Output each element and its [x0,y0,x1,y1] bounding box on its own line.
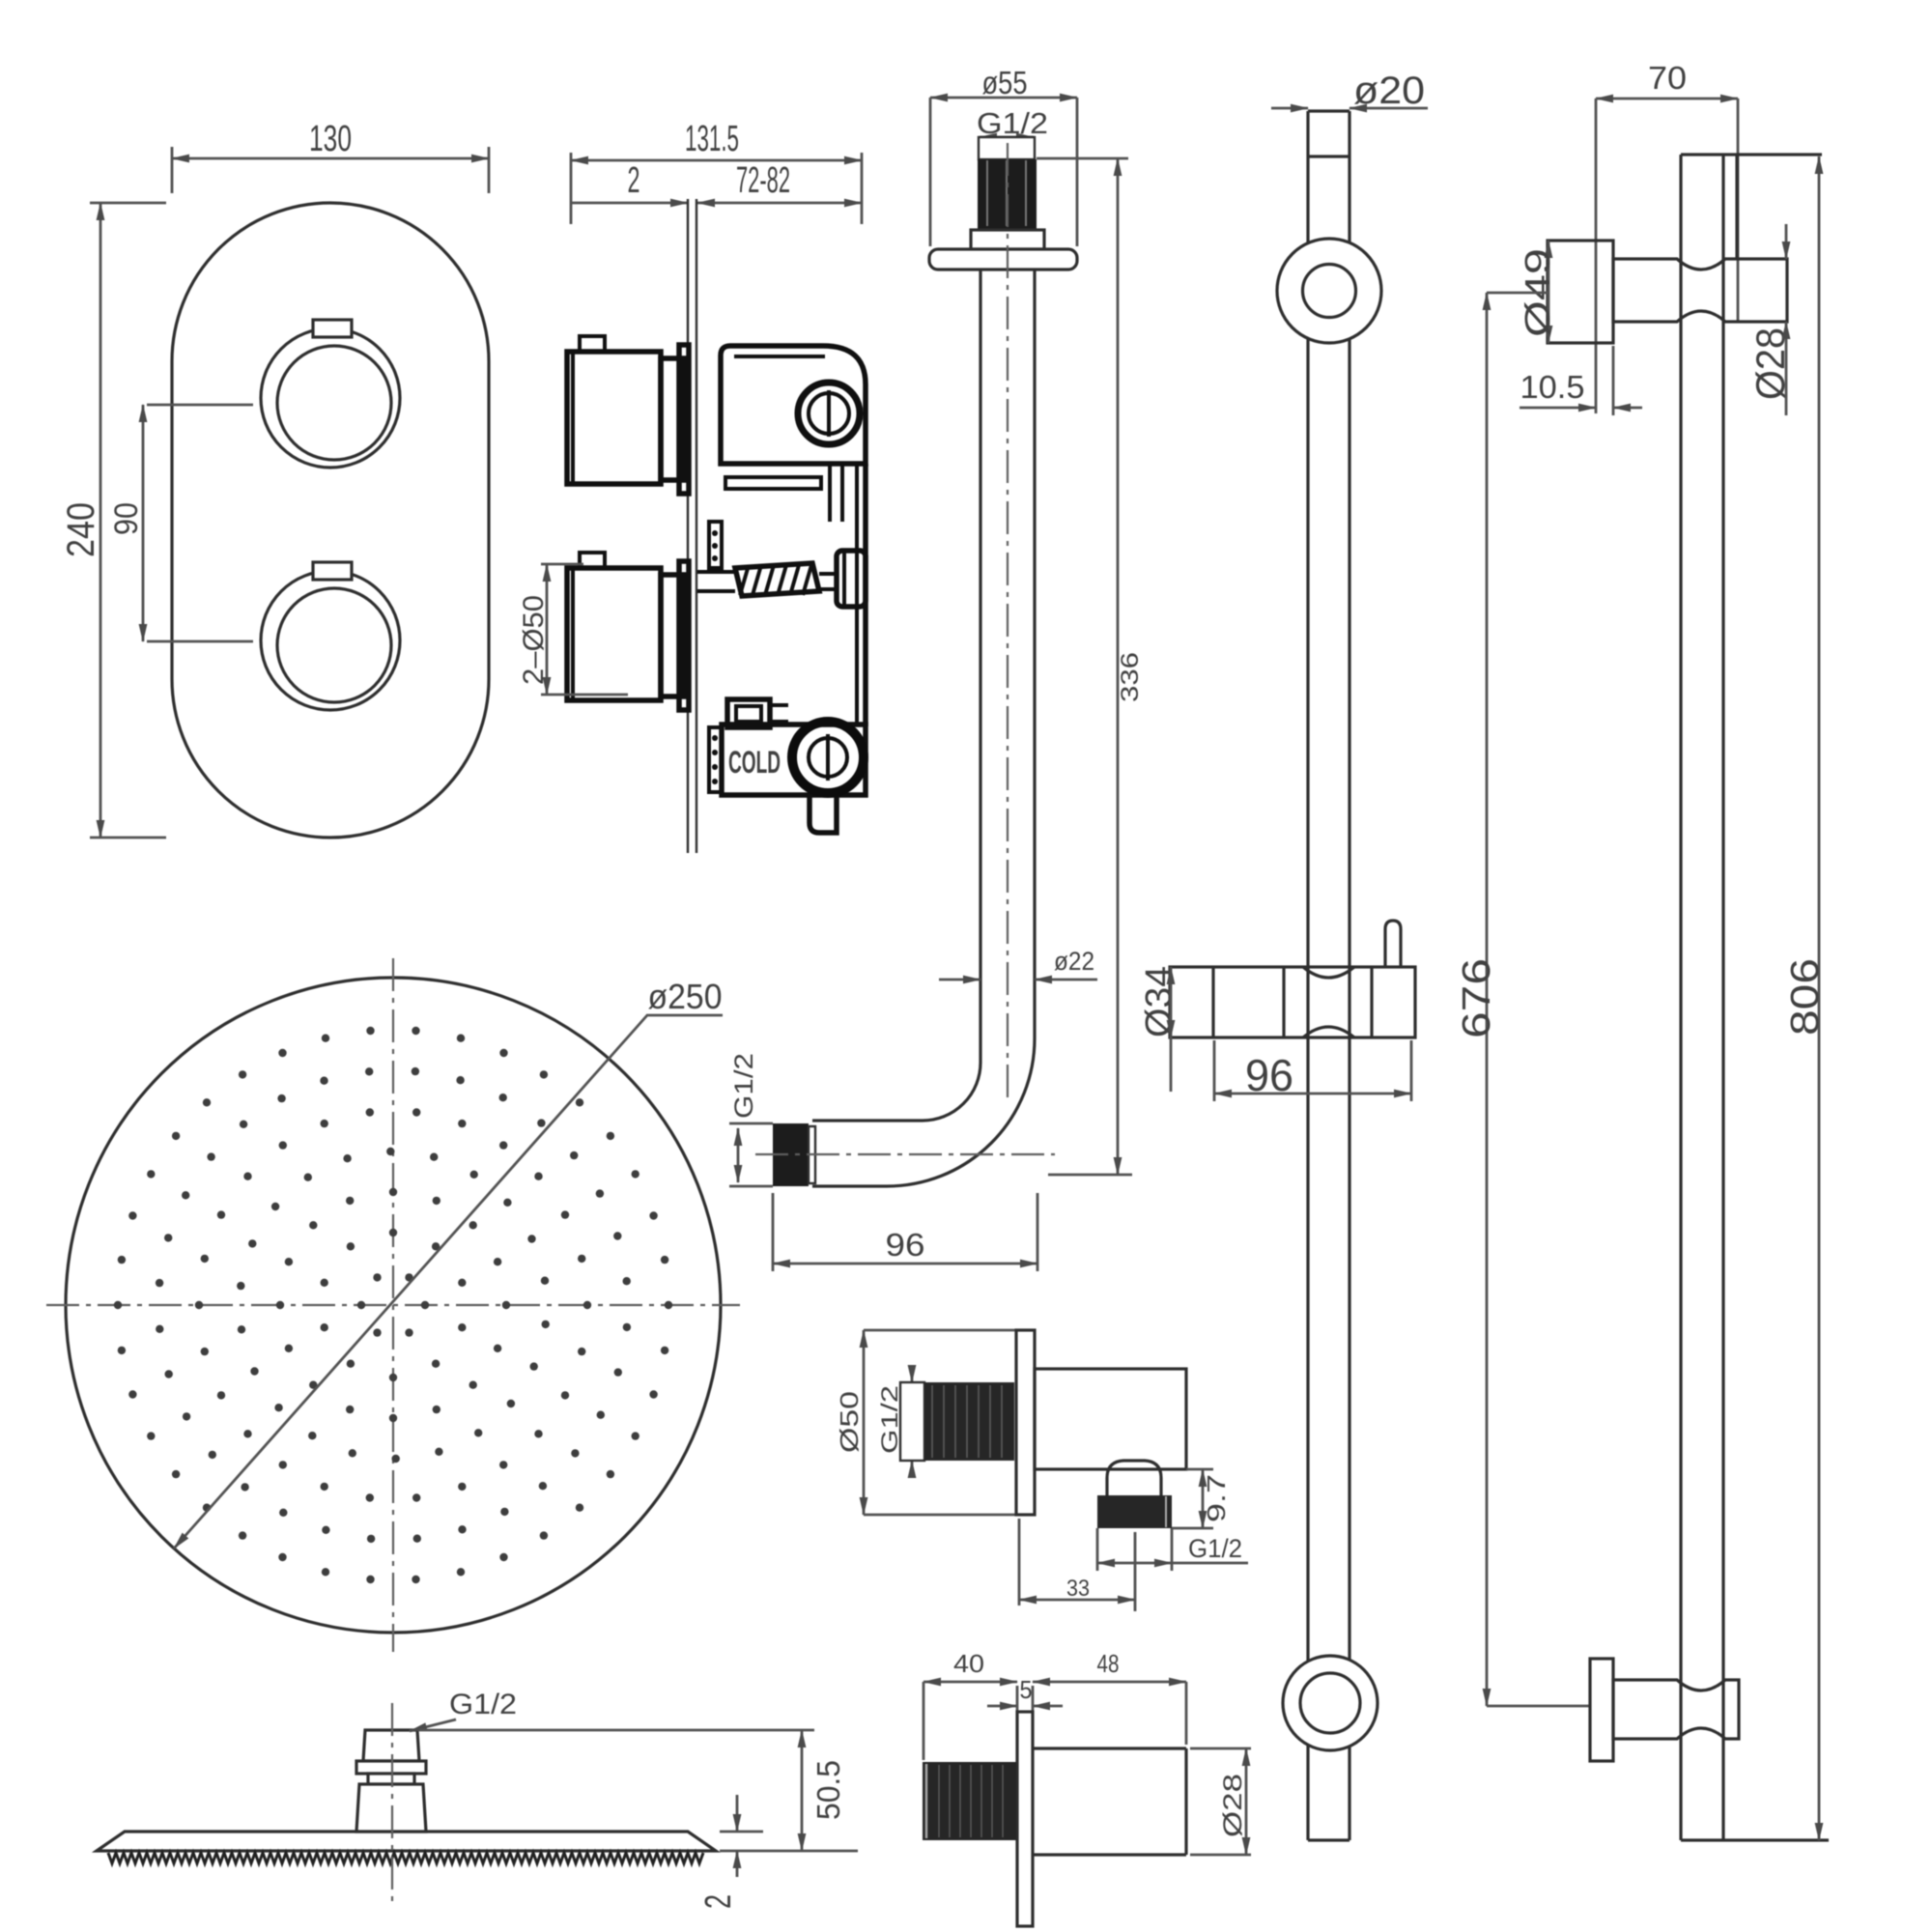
svg-text:G1/2: G1/2 [977,106,1048,140]
svg-text:130: 130 [309,119,352,159]
svg-text:336: 336 [1117,652,1144,702]
svg-text:33: 33 [1066,1576,1090,1602]
svg-text:G1/2: G1/2 [449,1689,517,1720]
svg-text:9.7: 9.7 [1202,1474,1231,1522]
svg-text:G1/2: G1/2 [729,1053,758,1119]
svg-text:ø20: ø20 [1353,70,1425,112]
svg-text:G1/2: G1/2 [1188,1534,1242,1563]
svg-text:676: 676 [1454,958,1498,1038]
svg-text:ø55: ø55 [982,65,1028,100]
svg-text:Ø50: Ø50 [835,1391,864,1453]
svg-text:96: 96 [1245,1050,1293,1100]
svg-text:40: 40 [953,1649,984,1678]
svg-text:806: 806 [1782,958,1827,1036]
svg-text:72-82: 72-82 [736,160,790,201]
svg-text:2–Ø50: 2–Ø50 [518,595,550,685]
svg-text:240: 240 [60,502,102,557]
svg-text:ø22: ø22 [1054,947,1094,976]
svg-text:10.5: 10.5 [1520,369,1585,405]
svg-text:131.5: 131.5 [685,119,739,159]
svg-text:50.5: 50.5 [810,1760,846,1820]
svg-text:5: 5 [1020,1675,1033,1704]
svg-text:Ø28: Ø28 [1218,1774,1247,1837]
svg-text:96: 96 [886,1227,925,1263]
svg-text:2: 2 [628,160,640,201]
svg-text:2: 2 [698,1894,739,1909]
svg-text:ø250: ø250 [648,977,723,1016]
svg-text:48: 48 [1097,1649,1120,1678]
svg-text:COLD: COLD [728,745,781,780]
svg-text:90: 90 [108,502,145,535]
svg-text:70: 70 [1648,60,1687,96]
svg-text:Ø34: Ø34 [1139,966,1179,1037]
